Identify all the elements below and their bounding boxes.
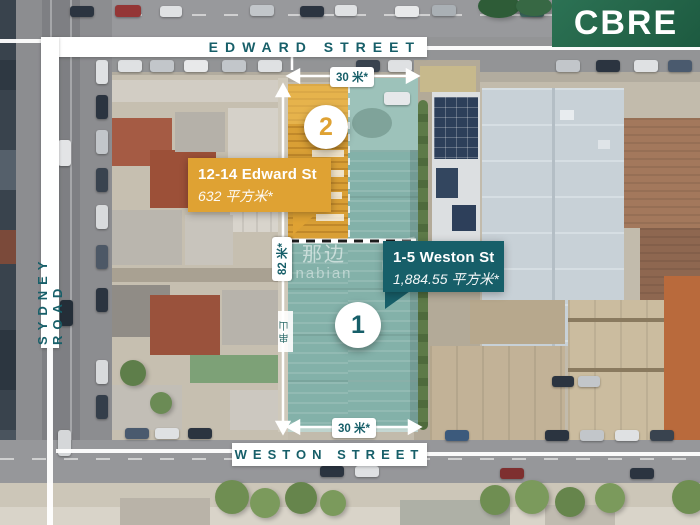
aerial-photo: EDWARD STREET SYDNEY ROAD WESTON STREET …	[0, 0, 700, 525]
watermark: 那边 nabian	[288, 244, 360, 283]
callout-pointer-lot1	[385, 289, 413, 309]
watermark-cn: 那边	[288, 244, 360, 266]
lot-1-address: 1-5 Weston St	[393, 249, 494, 266]
street-banner-edward: EDWARD STREET	[50, 37, 427, 57]
callout-lot-2: 12-14 Edward St 632 平方米*	[188, 158, 331, 212]
lot-2-badge: 2	[304, 105, 348, 149]
street-banner-weston: WESTON STREET	[232, 443, 427, 466]
lot-1-area: 1,884.55 平方米*	[393, 269, 494, 289]
lot-2-area: 632 平方米*	[198, 186, 321, 206]
street-banner-sydney: SYDNEY ROAD	[41, 37, 59, 348]
callout-lot-1: 1-5 Weston St 1,884.55 平方米*	[383, 241, 504, 292]
dimension-label-bottom: 30 米*	[332, 418, 376, 438]
street-name-sydney: SYDNEY ROAD	[41, 205, 59, 345]
cbre-logo-text: CBRE	[574, 4, 678, 43]
dimension-label-top: 30 米*	[330, 67, 374, 87]
vertical-photo-tag: 串山	[278, 311, 293, 352]
lot-1-badge: 1	[335, 302, 381, 348]
lot-2-address: 12-14 Edward St	[198, 166, 321, 183]
cbre-logo: CBRE	[552, 0, 700, 47]
callout-pointer-lot2	[293, 210, 320, 235]
street-name-edward: EDWARD STREET	[209, 39, 421, 55]
street-name-weston: WESTON STREET	[235, 447, 425, 462]
watermark-en: nabian	[288, 266, 360, 283]
